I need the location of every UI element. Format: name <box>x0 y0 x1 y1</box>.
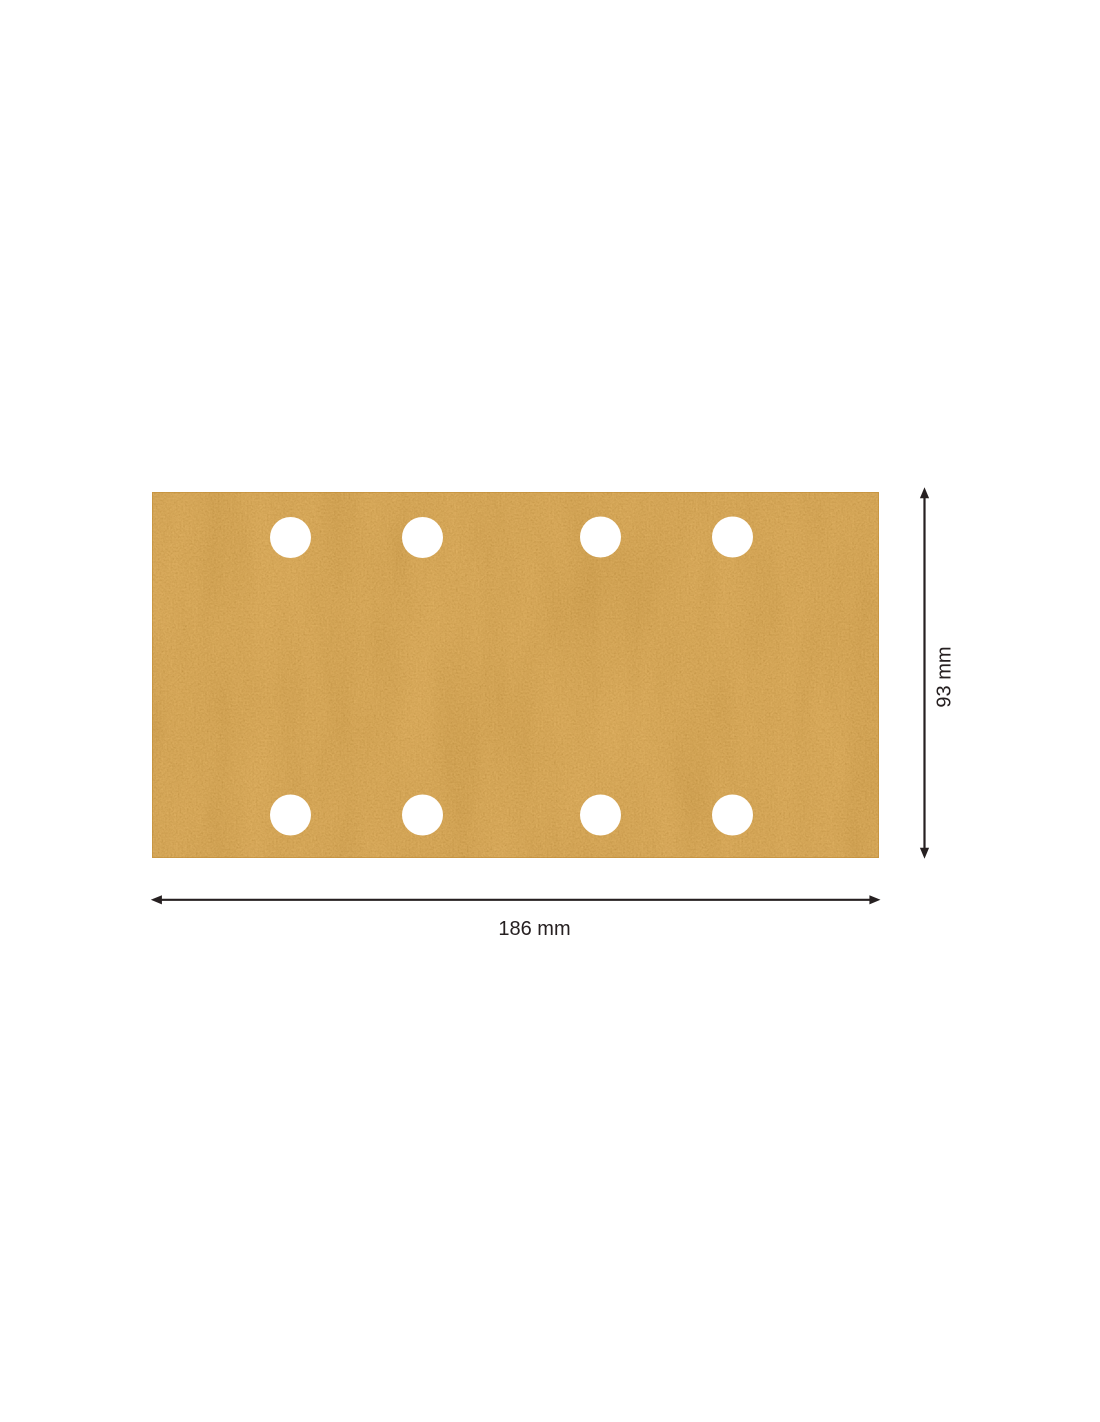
svg-text:186 mm: 186 mm <box>498 918 570 940</box>
svg-text:93 mm: 93 mm <box>934 646 956 707</box>
